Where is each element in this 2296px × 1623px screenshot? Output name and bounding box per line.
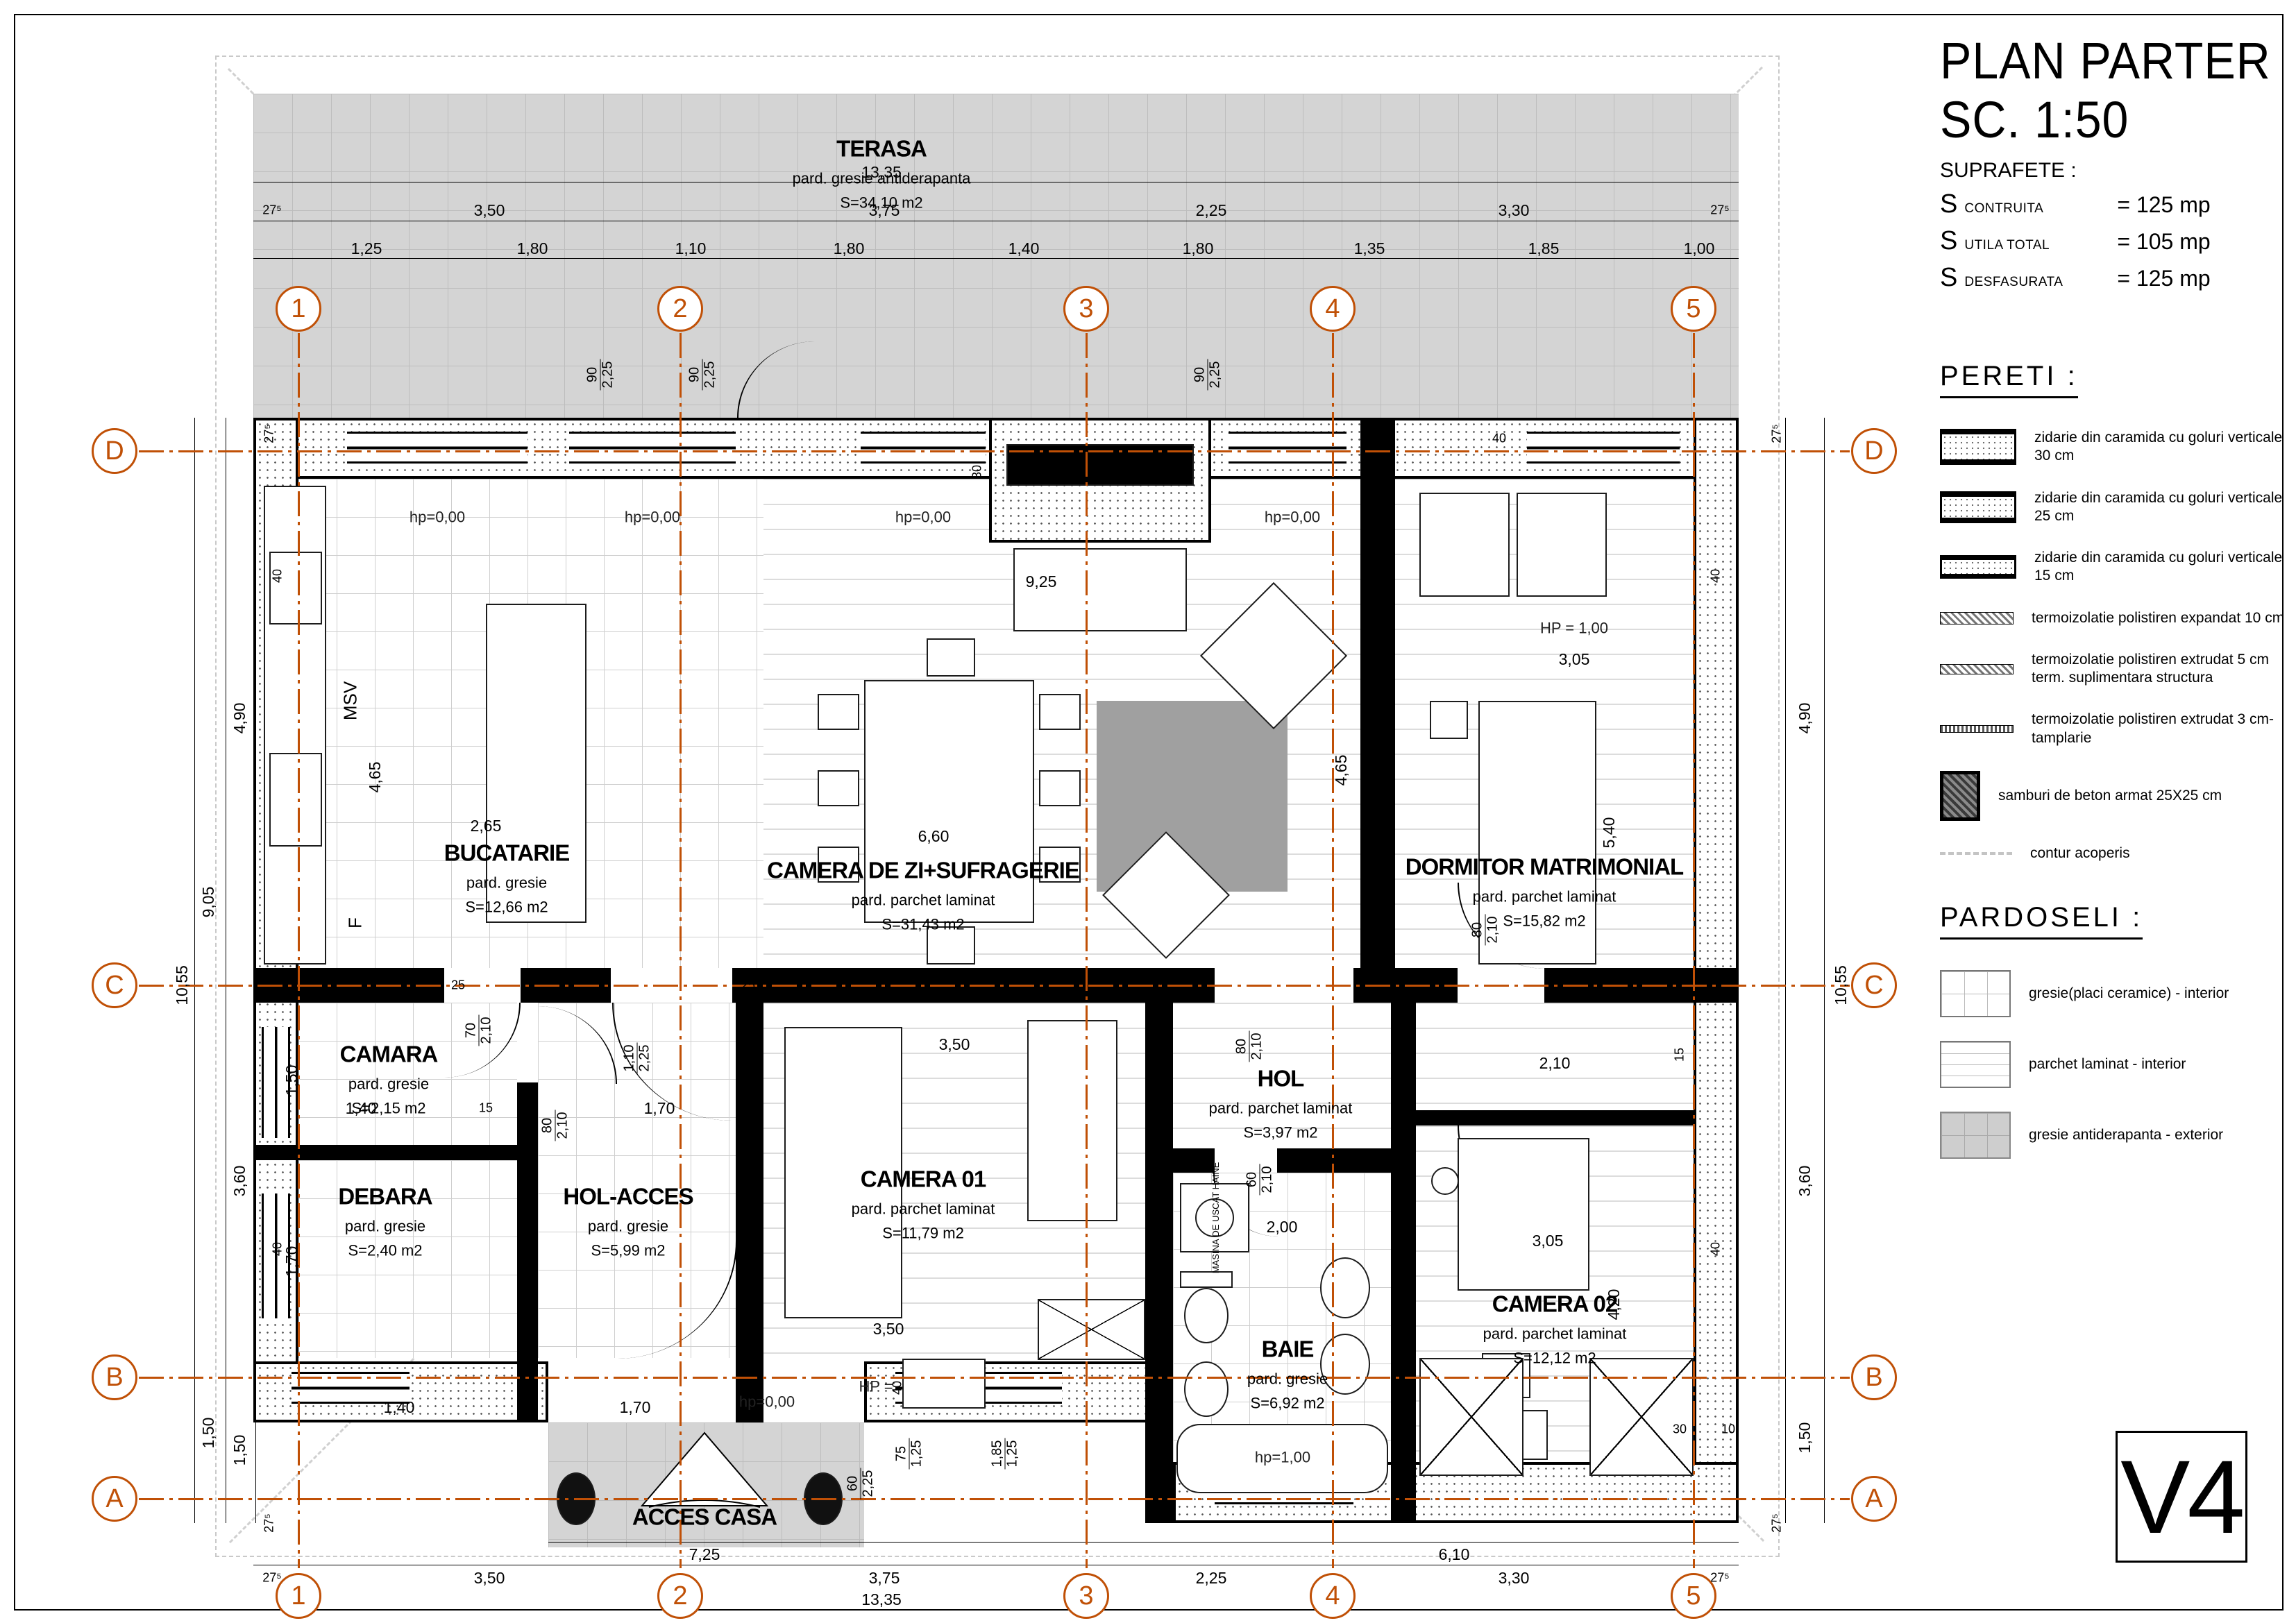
level-annotation: HP = <box>859 1378 893 1394</box>
door-dimension-fraction: 1,102,25 <box>623 1043 652 1074</box>
dim-inline: 3,45 <box>1388 1289 1405 1320</box>
dim-bottom: 6,10 <box>1439 1546 1470 1563</box>
legend-text: contur acoperis <box>2030 844 2130 863</box>
interior-wall <box>1360 418 1395 968</box>
dim-top: 27⁵ <box>1710 204 1729 217</box>
terrace-floor <box>253 94 1739 418</box>
door-height: 2,25 <box>1208 359 1223 391</box>
window <box>569 432 736 464</box>
grid-axis-1 <box>298 333 300 1568</box>
interior-wall <box>1277 1148 1391 1173</box>
room-label-terasa: TERASA <box>836 137 927 162</box>
dining-chair <box>1039 770 1081 806</box>
legend-text-line: gresie antiderapanta - exterior <box>2029 1126 2223 1144</box>
area-label: CONTRUITA <box>1964 201 2117 216</box>
room-area-bucatarie: S=12,66 m2 <box>465 899 548 915</box>
grid-axis-D <box>139 450 1850 452</box>
dim-top: 3,30 <box>1499 202 1530 219</box>
dim-left: 1,50 <box>231 1435 248 1466</box>
door-dimension-fraction: 751,25 <box>895 1438 925 1470</box>
dim-inline: 3,05 <box>1559 651 1590 668</box>
dining-chair <box>818 770 859 806</box>
room-floor-camara: pard. gresie <box>348 1076 429 1091</box>
legend-text: zidarie din caramida cu goluri verticale… <box>2034 489 2296 526</box>
bidet-bowl <box>1184 1361 1229 1417</box>
wall-thickness-tag: 40 <box>271 1242 285 1256</box>
room-label-debara: DEBARA <box>338 1185 432 1209</box>
room-area-dormitor: S=15,82 m2 <box>1503 912 1585 928</box>
door-height: 2,10 <box>1486 915 1501 946</box>
grid-bubble-C-right: C <box>1851 962 1897 1008</box>
pereti-legend: zidarie din caramida cu goluri verticale… <box>1940 429 2296 863</box>
door-width: 90 <box>586 359 601 391</box>
dim-inline: 4,65 <box>366 762 383 793</box>
room-area-camera-02: S=12,12 m2 <box>1513 1350 1596 1366</box>
legend-swatch-zid25-icon <box>1940 491 2016 523</box>
grid-axis-4 <box>1332 333 1334 1568</box>
areas-heading: SUPRAFETE : <box>1940 159 2296 182</box>
bed-camera02 <box>1458 1138 1589 1291</box>
door-dimension: 802,10 <box>1235 1031 1265 1062</box>
dining-chair <box>927 638 975 677</box>
dim-top: 1,00 <box>1684 240 1715 257</box>
door-width: 80 <box>1235 1031 1250 1062</box>
room-floor-camera-02: pard. parchet laminat <box>1483 1325 1627 1341</box>
dim-inline: 1,50 <box>283 1065 300 1096</box>
level-annotation: hp=0,00 <box>410 509 465 525</box>
wall-thickness-tag: 40 <box>271 569 285 583</box>
acces-casa-arrow <box>639 1429 770 1513</box>
interior-wall <box>736 1003 763 1422</box>
dim-inline: 4,20 <box>1605 1289 1622 1320</box>
door-dimension: 1,102,25 <box>623 1043 652 1074</box>
room-label-hol-acces: HOL-ACCES <box>563 1185 693 1209</box>
door-dimension: 751,25 <box>895 1438 925 1470</box>
door-dimension: 702,10 <box>464 1015 494 1046</box>
x-marked-window <box>1038 1299 1145 1360</box>
dim-bottom: 3,75 <box>869 1570 900 1586</box>
wall-thickness-tag: 30 <box>971 465 984 479</box>
legend-text-line: zidarie din caramida cu goluri verticale… <box>2034 489 2296 526</box>
room-floor-camera-01: pard. parchet laminat <box>852 1200 995 1216</box>
grid-bubble-A-right: A <box>1851 1476 1897 1522</box>
legend-text: termoizolatie polistiren expandat 10 cm <box>2032 609 2284 627</box>
door-width: 60 <box>1245 1164 1260 1196</box>
room-floor-debara: pard. gresie <box>345 1218 425 1234</box>
dim-top: 1,35 <box>1354 240 1385 257</box>
desk-camera01 <box>902 1359 986 1409</box>
dim-inline: 1,70 <box>283 1246 300 1277</box>
grid-axis-A <box>139 1498 1850 1500</box>
grid-bubble-5-bottom: 5 <box>1671 1573 1716 1619</box>
dim-left: 10,55 <box>174 965 190 1005</box>
dim-right: 4,90 <box>1796 703 1813 734</box>
legend-text-line: samburi de beton armat 25X25 cm <box>1998 787 2222 805</box>
door-height: 2,25 <box>703 359 718 391</box>
dim-inline: 3,35 <box>1149 1109 1166 1140</box>
level-annotation: hp=1,00 <box>1255 1449 1310 1465</box>
room-area-debara: S=2,40 m2 <box>348 1242 422 1258</box>
dim-left: 1,50 <box>200 1418 217 1449</box>
sink-oval <box>1320 1257 1370 1318</box>
legend-text-line: term. suplimentara structura <box>2032 669 2269 687</box>
door-height: 2,25 <box>861 1468 876 1499</box>
room-label-acces-casa: ACCES CASA <box>632 1506 777 1530</box>
fixture-label: MSV <box>341 681 360 720</box>
dimension-line <box>1785 418 1786 1523</box>
grid-bubble-A-left: A <box>92 1476 137 1522</box>
wall-thickness-tag: 25 <box>741 979 755 992</box>
room-label-camara: CAMARA <box>340 1043 438 1067</box>
door-dimension: 1,851,25 <box>990 1438 1020 1470</box>
dim-left: 27⁵ <box>263 424 276 443</box>
room-floor-bucatarie: pard. gresie <box>466 874 547 890</box>
kitchen-sink <box>269 552 322 624</box>
wall-thickness-tag: 40 <box>1710 569 1723 583</box>
door-dimension-fraction: 702,10 <box>464 1015 494 1046</box>
dim-inline: 1,40 <box>384 1399 415 1416</box>
dining-chair <box>818 694 859 730</box>
dim-top: 27⁵ <box>262 204 281 217</box>
area-symbol: S <box>1940 189 1957 219</box>
dim-inline: 2,00 <box>1267 1218 1298 1235</box>
grid-bubble-5-top: 5 <box>1671 286 1716 332</box>
grid-bubble-2-top: 2 <box>657 286 703 332</box>
dim-left: 4,90 <box>231 703 248 734</box>
grid-bubble-4-top: 4 <box>1310 286 1356 332</box>
legend-text-line: gresie(placi ceramice) - interior <box>2029 985 2229 1003</box>
grid-bubble-1-top: 1 <box>276 286 321 332</box>
legend-item: zidarie din caramida cu goluri verticale… <box>1940 429 2296 466</box>
wall-thickness-tag: 40 <box>1492 432 1506 445</box>
dimension-line <box>253 221 1739 221</box>
dim-right: 10,55 <box>1832 965 1849 1005</box>
dim-inline: 4,65 <box>1333 755 1349 786</box>
door-dimension: 802,10 <box>1471 915 1501 946</box>
legend-text: termoizolatie polistiren extrudat 5 cmte… <box>2032 651 2269 688</box>
legend-item: termoizolatie polistiren extrudat 5 cmte… <box>1940 651 2296 688</box>
legend-swatch-beton-icon <box>1940 771 1980 821</box>
level-annotation: hp=0,00 <box>1265 509 1320 525</box>
legend-text-line: zidarie din caramida cu goluri verticale… <box>2034 429 2296 466</box>
level-annotation: hp=0,00 <box>625 509 680 525</box>
door-dimension: 902,25 <box>1193 359 1223 391</box>
level-annotation: hp=0,00 <box>895 509 951 525</box>
door-width: 90 <box>688 359 703 391</box>
dim-bottom: 27⁵ <box>1710 1572 1729 1585</box>
area-symbol: S <box>1940 226 1957 256</box>
dim-top: 13,35 <box>861 164 902 180</box>
legend-text-line: parchet laminat - interior <box>2029 1055 2186 1073</box>
door-dimension-fraction: 902,25 <box>1193 359 1223 391</box>
window <box>347 432 527 464</box>
grid-bubble-B-right: B <box>1851 1354 1897 1400</box>
grid-bubble-D-left: D <box>92 428 137 474</box>
legend-swatch-t5-icon <box>1940 664 2014 674</box>
door-height: 2,10 <box>1250 1031 1265 1062</box>
door-dimension: 902,25 <box>586 359 616 391</box>
door-dimension-fraction: 802,10 <box>541 1110 571 1141</box>
wall-thickness-tag: 25 <box>451 979 465 992</box>
legend-text: samburi de beton armat 25X25 cm <box>1998 787 2222 805</box>
room-area-camera-01: S=11,79 m2 <box>882 1225 964 1241</box>
dim-top: 1,80 <box>517 240 548 257</box>
room-floor-dormitor: pard. parchet laminat <box>1473 888 1617 904</box>
pereti-heading: PERETI : <box>1940 361 2078 398</box>
legend-text: gresie antiderapanta - exterior <box>2029 1126 2223 1144</box>
wall-thickness-tag: 40 <box>1710 1242 1723 1256</box>
door-dimension: 902,25 <box>688 359 718 391</box>
version-badge: V4 <box>2116 1431 2247 1563</box>
dim-inline: 9,25 <box>1026 573 1057 590</box>
door-width: 75 <box>895 1438 910 1470</box>
dim-bottom: 27⁵ <box>262 1572 281 1585</box>
door-height: 2,10 <box>480 1015 494 1046</box>
grid-bubble-2-bottom: 2 <box>657 1573 703 1619</box>
kitchen-hob <box>269 753 322 847</box>
area-value: = 105 mp <box>2117 229 2210 255</box>
level-annotation: HP = 1,00 <box>1540 620 1608 636</box>
dim-bottom: 3,30 <box>1499 1570 1530 1586</box>
fixture-label: F <box>346 917 364 928</box>
dim-bottom: 7,25 <box>689 1546 720 1563</box>
level-annotation: hp=0,00 <box>739 1393 795 1409</box>
interior-wall <box>253 1145 517 1160</box>
pardoseli-legend: gresie(placi ceramice) - interiorparchet… <box>1940 970 2296 1159</box>
dim-inline: 1,40 <box>346 1100 377 1116</box>
door-height: 2,10 <box>556 1110 571 1141</box>
dim-left: 9,05 <box>200 887 217 918</box>
wall-thickness-tag: 15 <box>521 1173 534 1187</box>
dim-top: 3,50 <box>474 202 505 219</box>
dim-left: 27⁵ <box>263 1513 276 1532</box>
drawing-scale: SC. 1:50 <box>1940 90 2272 149</box>
areas-list: SCONTRUITA= 125 mpSUTILA TOTAL= 105 mpSD… <box>1940 189 2296 293</box>
door-height: 1,25 <box>1006 1438 1020 1470</box>
room-label-camera-02: CAMERA 02 <box>1492 1293 1617 1317</box>
window <box>1229 432 1347 464</box>
room-label-dormitor: DORMITOR MATRIMONIAL <box>1406 856 1683 880</box>
legend-item: termoizolatie polistiren expandat 10 cm <box>1940 609 2296 627</box>
grid-bubble-3-bottom: 3 <box>1063 1573 1109 1619</box>
wardrobe <box>1517 493 1607 597</box>
dimension-line <box>253 182 1739 182</box>
wall-thickness-tag: 10 <box>1721 1423 1735 1436</box>
window <box>861 432 986 464</box>
dim-bottom: 3,50 <box>474 1570 505 1586</box>
legend-swatch-gresie-ext-icon <box>1940 1112 2011 1159</box>
dim-top: 2,25 <box>1196 202 1227 219</box>
area-value: = 125 mp <box>2117 192 2210 218</box>
door-height: 2,25 <box>601 359 616 391</box>
grid-bubble-C-left: C <box>92 962 137 1008</box>
legend-item: termoizolatie polistiren extrudat 3 cm-t… <box>1940 711 2296 747</box>
dim-right: 27⁵ <box>1771 424 1784 443</box>
door-height: 1,25 <box>910 1438 925 1470</box>
room-label-bucatarie: BUCATARIE <box>444 842 569 866</box>
grid-bubble-D-right: D <box>1851 428 1897 474</box>
legend-swatch-zid15-icon <box>1940 555 2016 579</box>
wall-thickness-tag: 25 <box>1397 1200 1410 1214</box>
dim-inline: 1,70 <box>644 1100 675 1116</box>
door-dimension-fraction: 802,10 <box>1235 1031 1265 1062</box>
door-dimension: 602,10 <box>1245 1164 1275 1196</box>
grid-axis-B <box>139 1377 1850 1379</box>
dim-inline: 15 <box>524 1401 538 1414</box>
toilet-bowl <box>1184 1288 1229 1343</box>
wall-thickness-tag: 20 <box>1018 465 1031 479</box>
room-label-camera-01: CAMERA 01 <box>861 1168 986 1192</box>
x-marked-window <box>1419 1358 1523 1476</box>
dimension-line <box>255 418 256 1523</box>
room-floor-baie: pard. gresie <box>1247 1370 1328 1386</box>
interior-wall <box>1416 1110 1694 1125</box>
wall-thickness-tag: 25 <box>1152 979 1166 992</box>
door-width: 80 <box>541 1110 556 1141</box>
door-dimension-fraction: 1,851,25 <box>990 1438 1020 1470</box>
legend-item: gresie(placi ceramice) - interior <box>1940 970 2296 1017</box>
dim-inline: 2,65 <box>471 817 502 834</box>
area-row: SUTILA TOTAL= 105 mp <box>1940 226 2296 256</box>
legend-text: termoizolatie polistiren extrudat 3 cm-t… <box>2032 711 2296 747</box>
room-floor-hol-acces: pard. gresie <box>588 1218 668 1234</box>
door-width: 70 <box>464 1015 480 1046</box>
dimension-line <box>253 258 1739 259</box>
dim-inline: 3,50 <box>873 1320 904 1337</box>
legend-item: gresie antiderapanta - exterior <box>1940 1112 2296 1159</box>
door-dimension-fraction: 602,10 <box>1245 1164 1275 1196</box>
interior-wall <box>1391 1003 1416 1523</box>
legend-swatch-t3-icon <box>1940 725 2014 733</box>
dim-inline: 2,10 <box>1539 1055 1571 1071</box>
door-dimension-fraction: 802,10 <box>1471 915 1501 946</box>
legend-item: samburi de beton armat 25X25 cm <box>1940 771 2296 821</box>
legend-text-line: contur acoperis <box>2030 844 2130 863</box>
area-label: DESFASURATA <box>1964 275 2117 290</box>
room-floor-camera-de-zi: pard. parchet laminat <box>852 892 995 908</box>
dimension-line <box>226 418 226 1523</box>
legend-swatch-gresie-int-icon <box>1940 970 2011 1017</box>
area-symbol: S <box>1940 263 1957 293</box>
room-area-hol: S=3,97 m2 <box>1243 1124 1317 1140</box>
room-area-baie: S=6,92 m2 <box>1250 1395 1324 1411</box>
person-head <box>1431 1167 1459 1195</box>
dim-top: 1,85 <box>1528 240 1560 257</box>
room-area-hol-acces: S=5,99 m2 <box>591 1242 665 1258</box>
room-label-hol: HOL <box>1258 1067 1304 1091</box>
legend-item: contur acoperis <box>1940 844 2296 863</box>
door-dimension-fraction: 902,25 <box>688 359 718 391</box>
grid-axis-C <box>139 985 1850 987</box>
dim-inline: 3,05 <box>1533 1232 1564 1249</box>
legend-swatch-parchet-icon <box>1940 1041 2011 1088</box>
grid-bubble-4-bottom: 4 <box>1310 1573 1356 1619</box>
dimension-line <box>253 1565 1739 1565</box>
grid-bubble-B-left: B <box>92 1354 137 1400</box>
wall-thickness-tag: 30 <box>1673 1423 1687 1436</box>
pardoseli-heading: PARDOSELI : <box>1940 902 2143 940</box>
door-dimension-fraction: 902,25 <box>586 359 616 391</box>
area-value: = 125 mp <box>2117 266 2210 291</box>
toilet-tank <box>1180 1271 1233 1288</box>
nightstand <box>1430 701 1468 739</box>
dim-inline: 5,40 <box>1601 817 1617 849</box>
legend-text: zidarie din caramida cu goluri verticale… <box>2034 549 2296 586</box>
door-width: 80 <box>1471 915 1486 946</box>
area-row: SDESFASURATA= 125 mp <box>1940 263 2296 293</box>
door-width: 60 <box>846 1468 861 1499</box>
dim-inline: 1,70 <box>620 1399 651 1416</box>
dining-table <box>864 680 1034 923</box>
door-height: 2,25 <box>638 1043 652 1074</box>
dim-inline: 3,50 <box>939 1036 970 1053</box>
grid-axis-3 <box>1086 333 1088 1568</box>
dim-top: 1,25 <box>351 240 382 257</box>
dim-right: 27⁵ <box>1771 1513 1784 1532</box>
legend-swatch-t10-icon <box>1940 612 2014 624</box>
legend-text: gresie(placi ceramice) - interior <box>2029 985 2229 1003</box>
door-width: 1,85 <box>990 1438 1006 1470</box>
dim-inline: 15 <box>1673 1048 1687 1062</box>
legend-item: zidarie din caramida cu goluri verticale… <box>1940 549 2296 586</box>
room-label-camera-de-zi: CAMERA DE ZI+SUFRAGERIE <box>767 859 1079 883</box>
legend-text: parchet laminat - interior <box>2029 1055 2186 1073</box>
legend-text-line: termoizolatie polistiren extrudat 5 cm <box>2032 651 2269 669</box>
legend-text-line: termoizolatie polistiren expandat 10 cm <box>2032 609 2284 627</box>
legend-swatch-contur-icon <box>1940 852 2012 855</box>
dimension-line <box>548 1542 1739 1543</box>
legend-item: parchet laminat - interior <box>1940 1041 2296 1088</box>
interior-wall <box>517 1082 538 1422</box>
area-label: UTILA TOTAL <box>1964 238 2117 253</box>
wardrobe <box>1419 493 1510 597</box>
dim-bottom: 2,25 <box>1196 1570 1227 1586</box>
dim-right: 1,50 <box>1796 1422 1813 1454</box>
couch-camera01 <box>1027 1020 1117 1221</box>
door-dimension-fraction: 602,25 <box>846 1468 876 1499</box>
dimension-line <box>1824 418 1825 1523</box>
room-area-camera-de-zi: S=31,43 m2 <box>881 916 964 932</box>
door-height: 2,10 <box>1260 1164 1275 1196</box>
legend-text-line: termoizolatie polistiren extrudat 3 cm-t… <box>2032 711 2296 747</box>
legend-text: zidarie din caramida cu goluri verticale… <box>2034 429 2296 466</box>
dim-top: 1,10 <box>675 240 707 257</box>
legend-text-line: zidarie din caramida cu goluri verticale… <box>2034 549 2296 586</box>
dim-top: 1,80 <box>1183 240 1214 257</box>
dim-top: 1,40 <box>1008 240 1040 257</box>
door-dimension: 602,25 <box>846 1468 876 1499</box>
interior-wall <box>1145 1003 1173 1523</box>
door-width: 90 <box>1193 359 1208 391</box>
dim-inline: 15 <box>479 1102 493 1115</box>
grid-axis-5 <box>1693 333 1695 1568</box>
door-width: 1,10 <box>623 1043 638 1074</box>
dim-top: 3,75 <box>869 202 900 219</box>
fixture-label: MASINA DE USCAT HAINE <box>1211 1162 1221 1274</box>
room-floor-hol: pard. parchet laminat <box>1209 1100 1353 1116</box>
area-row: SCONTRUITA= 125 mp <box>1940 189 2296 219</box>
legend-swatch-zid30-icon <box>1940 429 2016 465</box>
x-marked-window <box>1589 1358 1694 1476</box>
room-label-baie: BAIE <box>1262 1338 1314 1362</box>
dim-top: 1,80 <box>834 240 865 257</box>
dim-inline: 6,60 <box>918 828 949 844</box>
grid-bubble-3-top: 3 <box>1063 286 1109 332</box>
drawing-title: PLAN PARTER <box>1940 31 2272 90</box>
dim-left: 3,60 <box>231 1166 248 1197</box>
grid-bubble-1-bottom: 1 <box>276 1573 321 1619</box>
door-dimension: 802,10 <box>541 1110 571 1141</box>
